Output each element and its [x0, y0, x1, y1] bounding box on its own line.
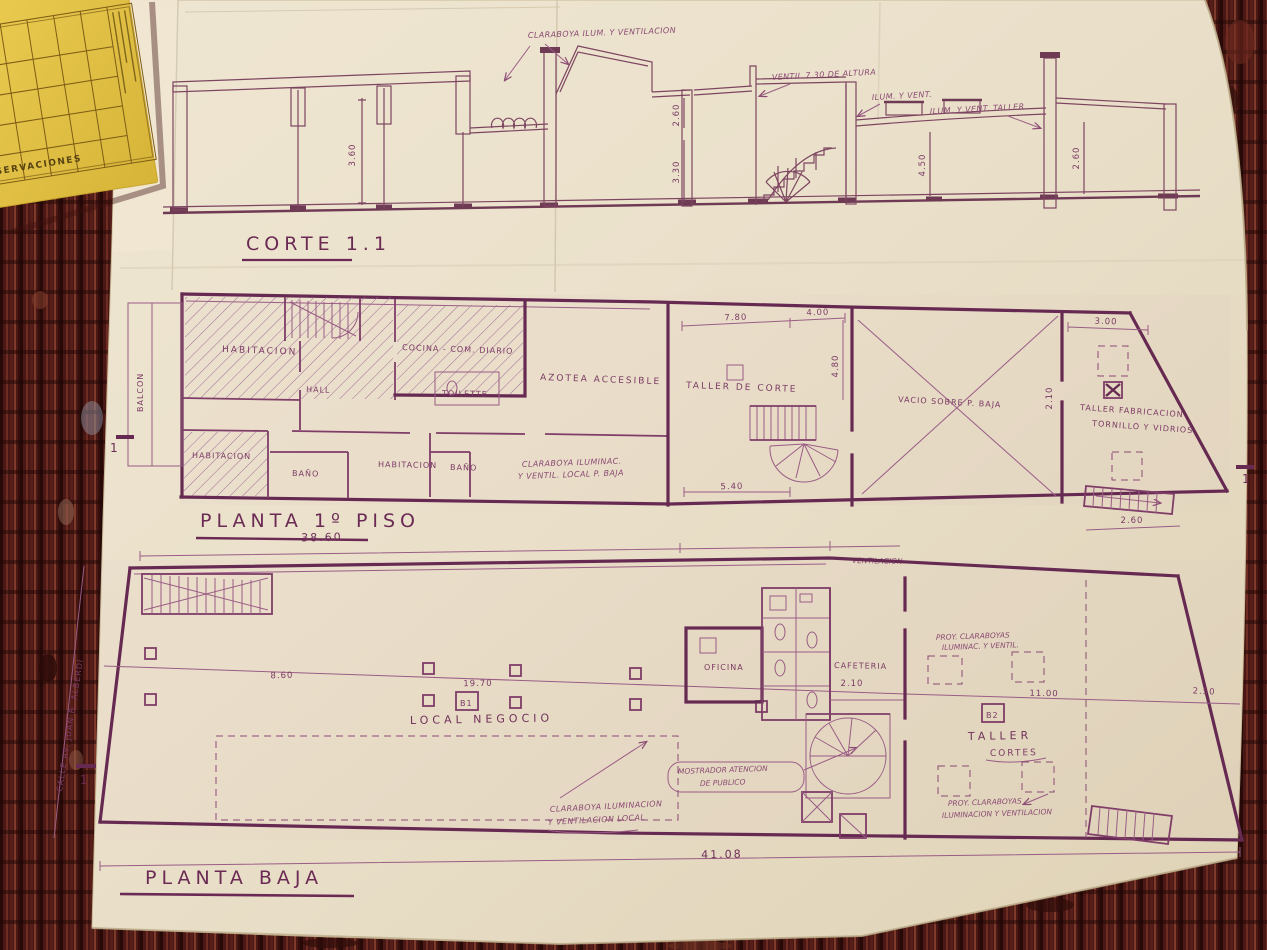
plan1-section-marker-right: 1 [1242, 472, 1250, 486]
dim-3-60: 3.60 [348, 144, 358, 167]
pbaja-tint [100, 560, 1240, 840]
dim-2-60-der: 2.60 [1072, 147, 1082, 170]
blueprint-photo: OBSERVACIONES 3.60 2.60 [0, 0, 1267, 950]
dim-5-40: 5.40 [720, 482, 743, 492]
room-label-bano1: BAÑO [292, 468, 319, 478]
room-label-toilette: TOILETTE [441, 389, 488, 399]
dim-4-80: 4.80 [831, 355, 841, 378]
marker-b1-label: B1 [460, 699, 473, 708]
dim-4-00: 4.00 [806, 308, 829, 319]
plan1-title: PLANTA 1º PISO [200, 510, 420, 532]
pbaja-section-marker: 1 [80, 773, 88, 787]
room-label-balcon: BALCON [136, 373, 145, 412]
dim-2-10-pbaja: 2.10 [841, 679, 864, 689]
dim-2-60-plan1: 2.60 [1121, 516, 1144, 526]
dim-3-00: 3.00 [1094, 317, 1117, 328]
section-title: CORTE 1.1 [246, 233, 391, 255]
dim-4-50: 4.50 [918, 154, 928, 177]
dim-3-30: 3.30 [672, 161, 682, 184]
scene-canvas: OBSERVACIONES 3.60 2.60 [0, 0, 1267, 950]
dim-7-80: 7.80 [724, 313, 747, 324]
dim-2-50: 2.50 [1192, 686, 1215, 697]
mostrador-label-2: DE PUBLICO [700, 777, 746, 788]
plan1-hab2-hatch [183, 432, 268, 496]
section-tall-wall-cap [1040, 52, 1060, 58]
room-label-hab2: HABITACION [192, 451, 251, 461]
room-label-cafeteria: CAFETERIA [834, 661, 887, 671]
dim-41-08: 41.08 [701, 848, 743, 862]
pbaja-title: PLANTA BAJA [145, 867, 323, 889]
room-label-taller: TALLER [967, 729, 1032, 743]
card-body [0, 0, 158, 210]
planta-1piso-drawing: BALCON 1 7.80 4.00 4.80 5.40 TALLER DE C… [110, 294, 1254, 540]
dim-38-60: 38.60 [301, 531, 343, 545]
room-label-taller-sub: CORTES [990, 748, 1038, 759]
dim-2-60-sup: 2.60 [672, 104, 682, 127]
dim-2-10-plan1: 2.10 [1045, 387, 1055, 410]
dim-11-00: 11.00 [1029, 689, 1059, 700]
room-label-oficina: OFICINA [704, 663, 744, 672]
marker-b2-label: B2 [986, 711, 999, 720]
dim-8-60: 8.60 [270, 671, 293, 681]
plan1-stairs-top [290, 300, 358, 339]
room-label-hab3: HABITACION [378, 460, 437, 470]
room-label-hall: HALL [306, 385, 331, 395]
room-label-bano2: BAÑO [450, 462, 477, 472]
dim-19-70: 19.70 [463, 679, 493, 690]
plan1-section-marker-left: 1 [110, 441, 118, 455]
yellow-card: OBSERVACIONES [0, 0, 160, 213]
room-label-local-negocio: LOCAL NEGOCIO [410, 712, 553, 727]
